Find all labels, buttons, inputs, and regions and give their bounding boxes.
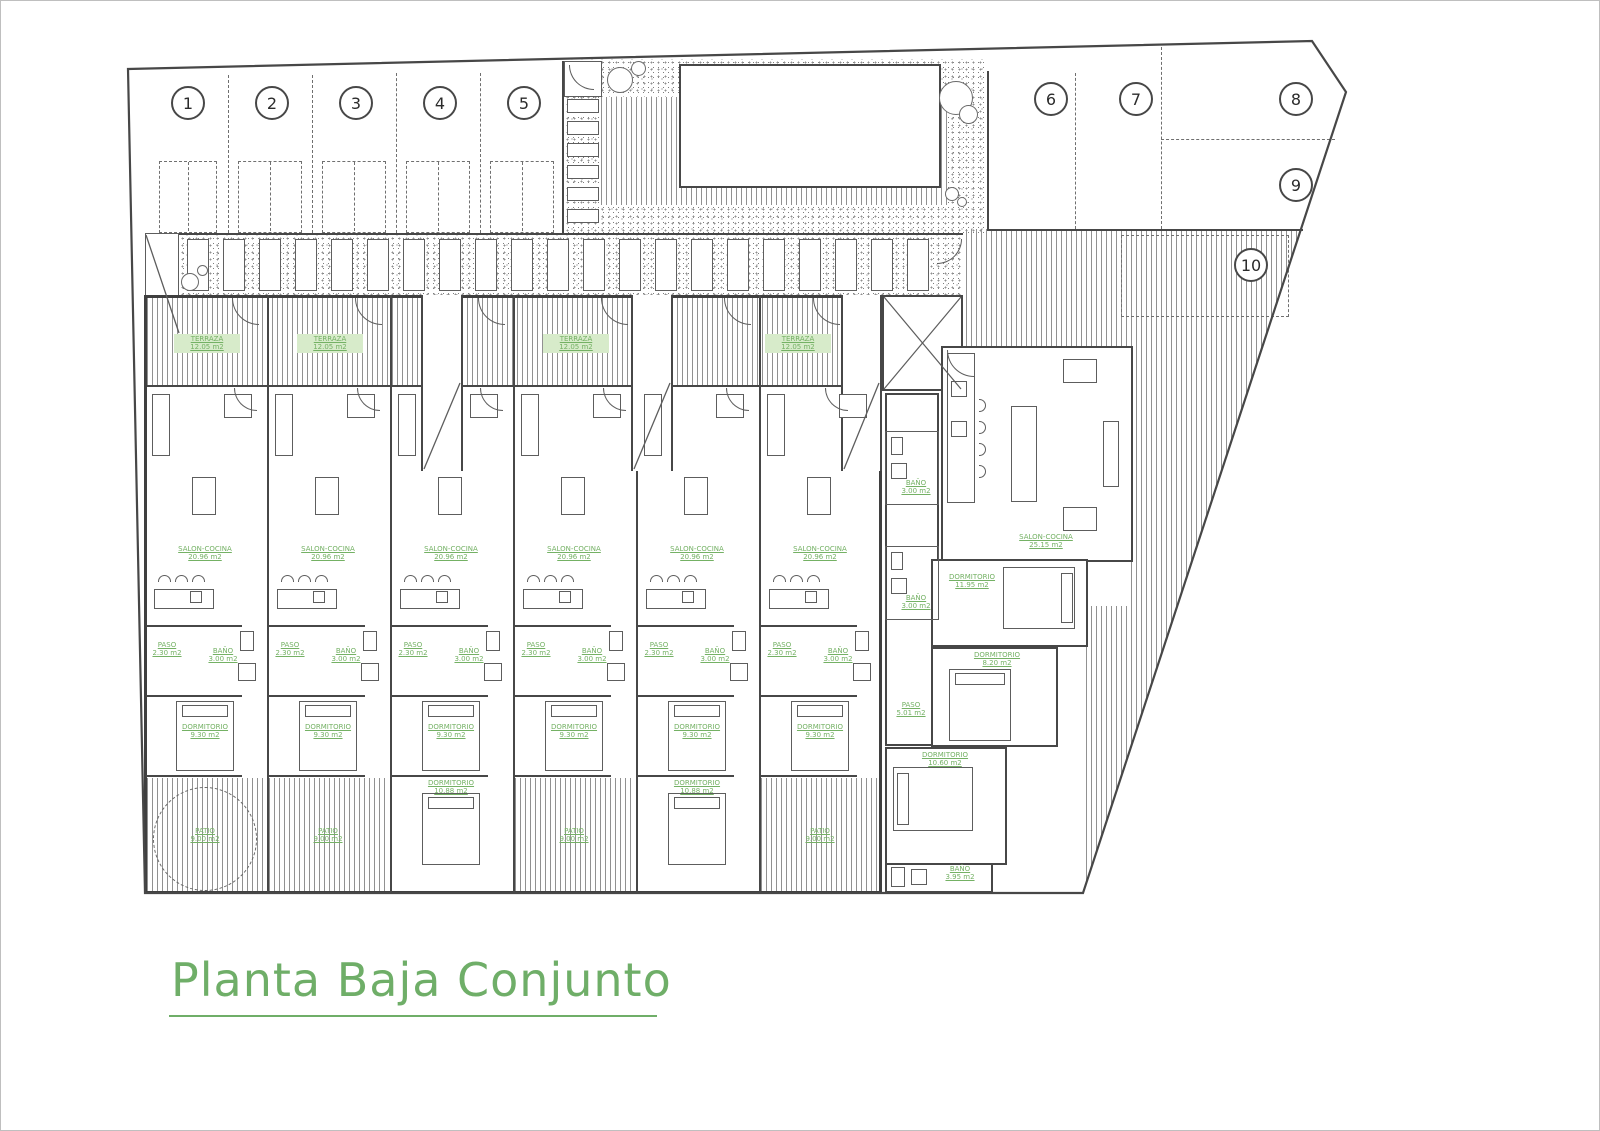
- pergola-outline: [238, 161, 302, 233]
- table: [438, 477, 462, 515]
- parking-number-text: 8: [1291, 90, 1301, 109]
- sink: [436, 591, 448, 603]
- parking-number-4: 4: [423, 86, 457, 120]
- room-area: 9.30 m2: [666, 731, 728, 739]
- parking-number-text: 9: [1291, 176, 1301, 195]
- stool: [298, 575, 311, 582]
- room-label-bano: BAÑO3.00 m2: [897, 479, 935, 496]
- partition-wall: [269, 775, 365, 777]
- paver: [763, 239, 785, 291]
- room-label-dormitorio: DORMITORIO11.95 m2: [939, 573, 1005, 590]
- pillow: [428, 705, 474, 717]
- pillow: [305, 705, 351, 717]
- room-name: SALON-COCINA: [295, 545, 361, 553]
- room-label-paso: PASO2.30 m2: [273, 641, 307, 658]
- parking-separator: [1161, 139, 1335, 140]
- sofa: [398, 394, 416, 456]
- kitchen-counter: [769, 589, 829, 609]
- stool: [807, 575, 820, 582]
- sink: [891, 463, 907, 479]
- room-name: DORMITORIO: [666, 723, 728, 731]
- parking-wall: [987, 71, 989, 229]
- room-area: 9.30 m2: [789, 731, 851, 739]
- plan-title: Planta Baja Conjunto: [171, 953, 672, 1007]
- partition-wall: [515, 695, 611, 697]
- pergola-outline: [159, 161, 217, 233]
- partition-wall: [761, 775, 857, 777]
- paver: [619, 239, 641, 291]
- room-area: 9.30 m2: [174, 731, 236, 739]
- room-label-dormitorio: DORMITORIO9.30 m2: [420, 723, 482, 740]
- room-area: 2.30 m2: [150, 649, 184, 657]
- parking-separator: [228, 75, 229, 233]
- toilet: [732, 631, 746, 651]
- room-label-bano: BAÑO3.00 m2: [821, 647, 855, 664]
- pillow: [897, 773, 909, 825]
- stool: [561, 575, 574, 582]
- step-paver: [567, 187, 599, 201]
- room-name: TERRAZA: [176, 335, 238, 343]
- paver: [547, 239, 569, 291]
- sink: [313, 591, 325, 603]
- room-area: 9.30 m2: [297, 731, 359, 739]
- room-area: 9.00 m2: [793, 835, 847, 843]
- room-area: 9.00 m2: [547, 835, 601, 843]
- room-label-bano: BAÑO3.00 m2: [575, 647, 609, 664]
- room-label-paso: PASO2.30 m2: [150, 641, 184, 658]
- room-area: 3.00 m2: [897, 487, 935, 495]
- room-area: 12.05 m2: [545, 343, 607, 351]
- sink: [911, 869, 927, 885]
- room-label-salon: SALON-COCINA20.96 m2: [172, 545, 238, 562]
- side-table: [1103, 421, 1119, 487]
- stool: [315, 575, 328, 582]
- room-area: 12.05 m2: [176, 343, 238, 351]
- step-paver: [567, 165, 599, 179]
- plant-icon: [631, 61, 646, 76]
- partition-wall: [638, 625, 734, 627]
- partition-wall: [392, 775, 488, 777]
- paver: [655, 239, 677, 291]
- shower: [238, 663, 256, 681]
- partition-wall: [392, 695, 488, 697]
- partition-wall: [146, 625, 242, 627]
- parking-number-text: 1: [183, 94, 193, 113]
- room-name: DORMITORIO: [420, 723, 482, 731]
- room-name: BAÑO: [329, 647, 363, 655]
- parking-number-9: 9: [1279, 168, 1313, 202]
- armchair: [1063, 507, 1097, 531]
- stool: [790, 575, 803, 582]
- sofa: [521, 394, 539, 456]
- room-area: 2.30 m2: [519, 649, 553, 657]
- room-area: 9.00 m2: [178, 835, 232, 843]
- room-name: PASO: [396, 641, 430, 649]
- room-label-bano: BAÑO3.00 m2: [329, 647, 363, 664]
- kitchen-counter: [400, 589, 460, 609]
- exterior-stairs: [841, 295, 882, 471]
- partition-wall: [269, 695, 365, 697]
- room-label-dormitorio: DORMITORIO9.30 m2: [789, 723, 851, 740]
- room-label-bano: BAÑO3.00 m2: [452, 647, 486, 664]
- step-paver: [567, 121, 599, 135]
- room-label-dormitorio: DORMITORIO9.30 m2: [543, 723, 605, 740]
- toilet: [855, 631, 869, 651]
- room-name: SALON-COCINA: [418, 545, 484, 553]
- walkway-pavers: [179, 233, 963, 295]
- parking-number-7: 7: [1119, 82, 1153, 116]
- room-name: PASO: [273, 641, 307, 649]
- parking-number-10: 10: [1234, 248, 1268, 282]
- room-label-bano: BAÑO3.00 m2: [206, 647, 240, 664]
- paver: [259, 239, 281, 291]
- room-area: 3.00 m2: [575, 655, 609, 663]
- room-name: PASO: [765, 641, 799, 649]
- room-label-paso: PASO2.30 m2: [396, 641, 430, 658]
- room-area: 2.30 m2: [396, 649, 430, 657]
- stool: [650, 575, 663, 582]
- parking-number-1: 1: [171, 86, 205, 120]
- room-label-salon: SALON-COCINA20.96 m2: [787, 545, 853, 562]
- sink: [190, 591, 202, 603]
- pillow: [551, 705, 597, 717]
- stool: [281, 575, 294, 582]
- paver: [295, 239, 317, 291]
- stool: [404, 575, 417, 582]
- room-area: 20.96 m2: [664, 553, 730, 561]
- room-label-dormitorio: DORMITORIO9.30 m2: [666, 723, 728, 740]
- pillow: [182, 705, 228, 717]
- sink: [951, 381, 967, 397]
- shower: [361, 663, 379, 681]
- paver: [511, 239, 533, 291]
- room-area: 20.96 m2: [541, 553, 607, 561]
- parking-number-text: 4: [435, 94, 445, 113]
- stool: [667, 575, 680, 582]
- room-name: BAÑO: [206, 647, 240, 655]
- stool: [773, 575, 786, 582]
- room-label-salon-big: SALON-COCINA25.15 m2: [1001, 533, 1091, 550]
- parking-number-6: 6: [1034, 82, 1068, 116]
- partition-wall: [638, 775, 734, 777]
- sofa: [152, 394, 170, 456]
- step-paver: [567, 143, 599, 157]
- room-name: SALON-COCINA: [787, 545, 853, 553]
- room-name: DORMITORIO: [664, 779, 730, 787]
- toilet: [240, 631, 254, 651]
- parking-separator: [1161, 47, 1162, 229]
- paver: [691, 239, 713, 291]
- room-area: 10.88 m2: [664, 787, 730, 795]
- sofa: [1011, 406, 1037, 502]
- stool: [438, 575, 451, 582]
- room-area: 3.00 m2: [897, 602, 935, 610]
- room-area: 9.00 m2: [301, 835, 355, 843]
- room-name: TERRAZA: [299, 335, 361, 343]
- partition-wall: [515, 625, 611, 627]
- room-label-dormitorio: DORMITORIO9.30 m2: [174, 723, 236, 740]
- party-wall: [390, 295, 392, 894]
- sink: [805, 591, 817, 603]
- sink: [559, 591, 571, 603]
- room-label-patio: PATIO9.00 m2: [301, 827, 355, 844]
- room-name: BAÑO: [897, 479, 935, 487]
- partition-wall: [761, 625, 857, 627]
- pergola-outline: [406, 161, 470, 233]
- room-area: 3.00 m2: [821, 655, 855, 663]
- room-label-bano: BAÑO3.95 m2: [935, 865, 985, 882]
- room-area: 10.88 m2: [418, 787, 484, 795]
- table: [684, 477, 708, 515]
- parking-wall: [987, 229, 1303, 231]
- room-label-terraza: TERRAZA12.05 m2: [765, 334, 831, 353]
- room-area: 2.30 m2: [273, 649, 307, 657]
- toilet: [891, 437, 903, 455]
- room-area: 2.30 m2: [642, 649, 676, 657]
- cooktop: [951, 421, 967, 437]
- room-name: DORMITORIO: [907, 751, 983, 759]
- partition-wall: [269, 625, 365, 627]
- pillow: [797, 705, 843, 717]
- room-name: BAÑO: [935, 865, 985, 873]
- floor-plan-page: 1 2 3 4 5 6 7 8 9 10: [0, 0, 1600, 1131]
- pergola-outline: [322, 161, 386, 233]
- paver: [835, 239, 857, 291]
- parking-separator: [480, 73, 481, 233]
- stool: [544, 575, 557, 582]
- toilet: [891, 867, 905, 887]
- parking-number-text: 3: [351, 94, 361, 113]
- room-label-salon: SALON-COCINA20.96 m2: [541, 545, 607, 562]
- room-label-paso: PASO2.30 m2: [642, 641, 676, 658]
- room-name: PASO: [519, 641, 553, 649]
- room-label-terraza: TERRAZA12.05 m2: [297, 334, 363, 353]
- parking-number-text: 6: [1046, 90, 1056, 109]
- room-name: DORMITORIO: [543, 723, 605, 731]
- parking-number-text: 5: [519, 94, 529, 113]
- room-area: 3.00 m2: [206, 655, 240, 663]
- room-area: 3.00 m2: [329, 655, 363, 663]
- parking-separator: [1075, 73, 1076, 229]
- paver: [439, 239, 461, 291]
- party-wall: [513, 295, 515, 894]
- plant-icon: [957, 197, 967, 207]
- shower: [853, 663, 871, 681]
- room-area: 20.96 m2: [172, 553, 238, 561]
- room-name: DORMITORIO: [297, 723, 359, 731]
- stool: [175, 575, 188, 582]
- paver: [367, 239, 389, 291]
- paver: [907, 239, 929, 291]
- room-name: PATIO: [547, 827, 601, 835]
- room-name: PATIO: [793, 827, 847, 835]
- room-area: 12.05 m2: [299, 343, 361, 351]
- room-label-salon: SALON-COCINA20.96 m2: [664, 545, 730, 562]
- shower: [484, 663, 502, 681]
- paver: [475, 239, 497, 291]
- pillow: [674, 705, 720, 717]
- room-label-salon: SALON-COCINA20.96 m2: [418, 545, 484, 562]
- partition-wall: [761, 695, 857, 697]
- parking-number-2: 2: [255, 86, 289, 120]
- pillow: [428, 797, 474, 809]
- stool: [192, 575, 205, 582]
- room-name: SALON-COCINA: [1001, 533, 1091, 541]
- sofa: [275, 394, 293, 456]
- table: [561, 477, 585, 515]
- room-label-dormitorio: DORMITORIO8.20 m2: [959, 651, 1035, 668]
- room-name: SALON-COCINA: [664, 545, 730, 553]
- room-name: SALON-COCINA: [172, 545, 238, 553]
- kitchen-counter: [277, 589, 337, 609]
- stool: [158, 575, 171, 582]
- step-paver: [567, 99, 599, 113]
- room-label-bano: BAÑO3.00 m2: [698, 647, 732, 664]
- room-label-dormitorio: DORMITORIO10.88 m2: [418, 779, 484, 796]
- paver: [799, 239, 821, 291]
- sink: [682, 591, 694, 603]
- room-label-paso: PASO2.30 m2: [765, 641, 799, 658]
- pillow: [1061, 573, 1073, 623]
- room-name: PASO: [889, 701, 933, 709]
- shower: [607, 663, 625, 681]
- paver: [331, 239, 353, 291]
- sink: [891, 578, 907, 594]
- stool: [684, 575, 697, 582]
- room-area: 3.00 m2: [698, 655, 732, 663]
- kitchen-counter: [646, 589, 706, 609]
- room-area: 8.20 m2: [959, 659, 1035, 667]
- room-name: DORMITORIO: [959, 651, 1035, 659]
- partition-wall: [146, 695, 242, 697]
- stool: [421, 575, 434, 582]
- room-area: 2.30 m2: [765, 649, 799, 657]
- room-area: 12.05 m2: [767, 343, 829, 351]
- sofa: [644, 394, 662, 456]
- title-underline: [169, 1015, 657, 1017]
- room-name: DORMITORIO: [789, 723, 851, 731]
- plant-icon: [607, 67, 633, 93]
- kitchen-counter: [523, 589, 583, 609]
- parking-number-3: 3: [339, 86, 373, 120]
- room-name: BAÑO: [452, 647, 486, 655]
- pergola-outline: [490, 161, 554, 233]
- partition-wall: [638, 695, 734, 697]
- party-wall: [759, 295, 761, 894]
- room-area: 9.30 m2: [420, 731, 482, 739]
- paver: [223, 239, 245, 291]
- plant-icon: [959, 105, 978, 124]
- parking-number-5: 5: [507, 86, 541, 120]
- room-area: 10.60 m2: [907, 759, 983, 767]
- room-name: DORMITORIO: [418, 779, 484, 787]
- room-area: 3.95 m2: [935, 873, 985, 881]
- room-name: BAÑO: [575, 647, 609, 655]
- paver: [403, 239, 425, 291]
- room-label-patio: PATIO9.00 m2: [547, 827, 601, 844]
- room-label-dormitorio: DORMITORIO9.30 m2: [297, 723, 359, 740]
- parking-separator: [312, 75, 313, 233]
- room-name: PATIO: [178, 827, 232, 835]
- room-name: BAÑO: [897, 594, 935, 602]
- room-name: BAÑO: [821, 647, 855, 655]
- parking-separator: [396, 73, 397, 233]
- room-area: 20.96 m2: [418, 553, 484, 561]
- room-name: DORMITORIO: [174, 723, 236, 731]
- room-name: PATIO: [301, 827, 355, 835]
- room-area: 9.30 m2: [543, 731, 605, 739]
- room-name: BAÑO: [698, 647, 732, 655]
- paver: [583, 239, 605, 291]
- pillow: [955, 673, 1005, 685]
- pillow: [674, 797, 720, 809]
- room-label-patio: PATIO9.00 m2: [793, 827, 847, 844]
- room-name: TERRAZA: [767, 335, 829, 343]
- room-label-paso: PASO2.30 m2: [519, 641, 553, 658]
- partition-wall: [515, 775, 611, 777]
- room-label-dormitorio: DORMITORIO10.88 m2: [664, 779, 730, 796]
- parking-number-text: 2: [267, 94, 277, 113]
- room-area: 3.00 m2: [452, 655, 486, 663]
- room-name: PASO: [150, 641, 184, 649]
- room-label-salon: SALON-COCINA20.96 m2: [295, 545, 361, 562]
- toilet: [363, 631, 377, 651]
- room-name: TERRAZA: [545, 335, 607, 343]
- room-label-patio: PATIO9.00 m2: [178, 827, 232, 844]
- swimming-pool: [679, 64, 941, 188]
- plant-icon: [181, 273, 199, 291]
- step-paver: [567, 209, 599, 223]
- paver: [727, 239, 749, 291]
- room-area: 20.96 m2: [787, 553, 853, 561]
- room-label-terraza: TERRAZA12.05 m2: [174, 334, 240, 353]
- room-name: SALON-COCINA: [541, 545, 607, 553]
- parking-number-text: 7: [1131, 90, 1141, 109]
- room-label-bano: BAÑO3.00 m2: [897, 594, 935, 611]
- room-label-dormitorio: DORMITORIO10.60 m2: [907, 751, 983, 768]
- room-area: 11.95 m2: [939, 581, 1005, 589]
- parking-number-text: 10: [1241, 256, 1261, 275]
- toilet: [486, 631, 500, 651]
- room-label-terraza: TERRAZA12.05 m2: [543, 334, 609, 353]
- armchair: [1063, 359, 1097, 383]
- room-name: DORMITORIO: [939, 573, 1005, 581]
- sofa: [767, 394, 785, 456]
- exterior-stairs: [421, 295, 463, 471]
- room-label-paso: PASO5.01 m2: [889, 701, 933, 718]
- parking-number-8: 8: [1279, 82, 1313, 116]
- table: [192, 477, 216, 515]
- party-wall: [267, 295, 269, 894]
- table: [315, 477, 339, 515]
- toilet: [891, 552, 903, 570]
- kitchen-counter: [154, 589, 214, 609]
- toilet: [609, 631, 623, 651]
- plant-icon: [197, 265, 208, 276]
- room-area: 20.96 m2: [295, 553, 361, 561]
- stool: [527, 575, 540, 582]
- room-area: 25.15 m2: [1001, 541, 1091, 549]
- room-area: 5.01 m2: [889, 709, 933, 717]
- shower: [730, 663, 748, 681]
- table: [807, 477, 831, 515]
- paver: [871, 239, 893, 291]
- partition-wall: [392, 625, 488, 627]
- room-name: PASO: [642, 641, 676, 649]
- partition-wall: [146, 775, 242, 777]
